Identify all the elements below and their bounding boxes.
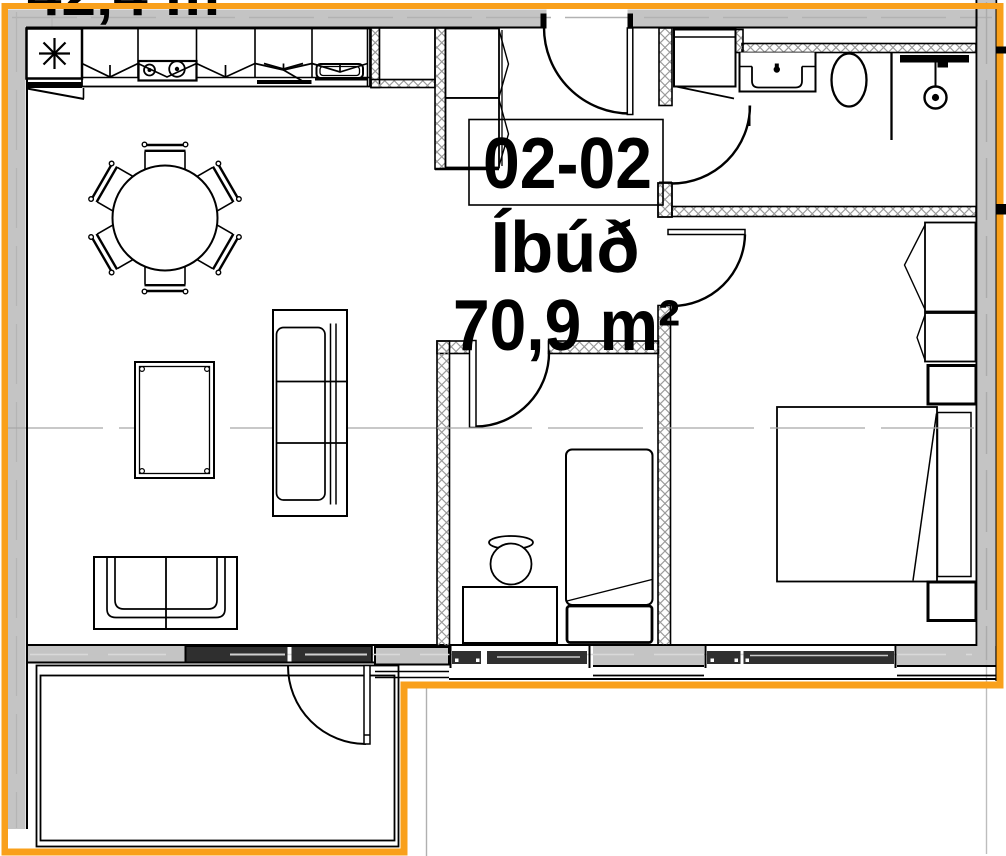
svg-text:Íbúð: Íbúð: [491, 208, 640, 288]
svg-text:70,9 m²: 70,9 m²: [453, 286, 680, 366]
svg-text:02-02: 02-02: [483, 124, 652, 204]
